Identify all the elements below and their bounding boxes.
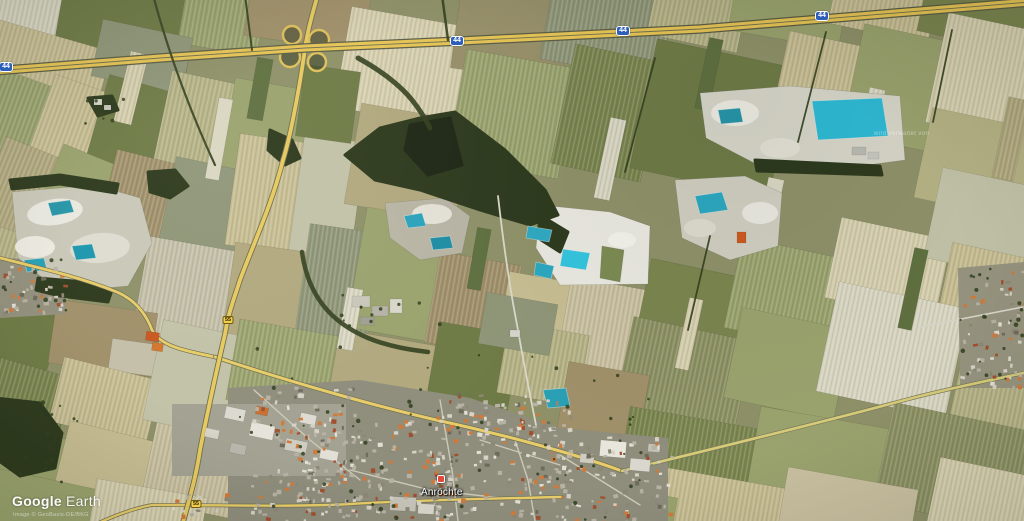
faint-imagery-note: wird verwaltet von	[874, 131, 929, 137]
photo-poi-marker-icon[interactable]	[437, 475, 445, 483]
autobahn-44-shield: 44	[450, 36, 464, 46]
autobahn-44-shield: 44	[616, 26, 630, 36]
bundesstrasse-55-shield: 55	[223, 316, 234, 324]
watermark-earth: Earth	[66, 493, 101, 509]
autobahn-44-shield: 44	[815, 11, 829, 21]
google-earth-viewport[interactable]: Anröchte wird verwaltet von GoogleEarth …	[0, 0, 1024, 521]
bundesstrasse-55-shield: 55	[191, 500, 202, 508]
autobahn-44-shield: 44	[0, 62, 13, 72]
imagery-attribution: Image © GeoBasis-DE/BKG	[13, 512, 89, 518]
google-earth-watermark: GoogleEarth	[12, 493, 101, 509]
place-label-anroechte[interactable]: Anröchte	[421, 487, 463, 498]
watermark-google: Google	[12, 493, 62, 509]
